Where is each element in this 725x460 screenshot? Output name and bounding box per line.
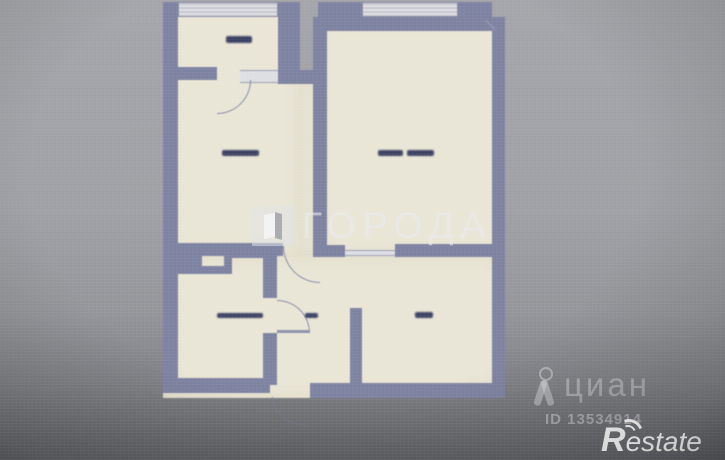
watermark-goroda: ГОРОДА [252,205,492,247]
wall-bath-step-riser [224,250,232,268]
goroda-watermark-text: ГОРОДА [302,205,492,247]
room-label-living-word2 [407,150,434,156]
wall-left-outer-bottom [163,274,178,393]
goroda-door-logo-icon [252,206,294,246]
wall-kitchen-top [278,70,318,84]
wall-bath-right-upper [263,250,277,298]
cian-pin-icon [531,367,557,409]
pin-head [539,367,553,381]
room-label-living-word1 [378,150,403,156]
door-arc-entrance [272,396,308,426]
watermark-restate: R estate [601,421,702,459]
wall-bottom-right [310,383,505,398]
room-label-balcony [226,36,252,43]
room-label-kitchen [222,150,259,156]
wall-hall-divider [350,308,362,383]
wall-living-top-right-block [458,2,492,17]
wall-living-top [318,17,505,31]
wall-balcony-bottom-stub [163,67,217,80]
room-label-hall [305,313,318,318]
living-room-door-opening [345,250,395,256]
balcony-window [178,2,278,17]
wall-bottom-left [163,378,270,393]
wall-living-top-left-block [318,2,362,17]
wall-bath-top-block [163,250,202,274]
wall-kitchen-left [163,80,178,256]
door-slot-shape [275,212,282,239]
wall-bath-step-high [232,250,263,258]
wall-right-outer [492,17,505,398]
floorplan-photo: ГОРОДА циан ID 13534914 R estate [0,0,725,460]
wall-balcony-right-block [278,2,300,80]
paper-bottom-block [163,256,505,398]
room-label-bathroom [217,313,263,318]
room-label-entry [415,312,433,318]
cian-watermark-text: циан [564,367,650,403]
door-leaf-shape [264,213,275,239]
living-room-window [362,2,458,17]
